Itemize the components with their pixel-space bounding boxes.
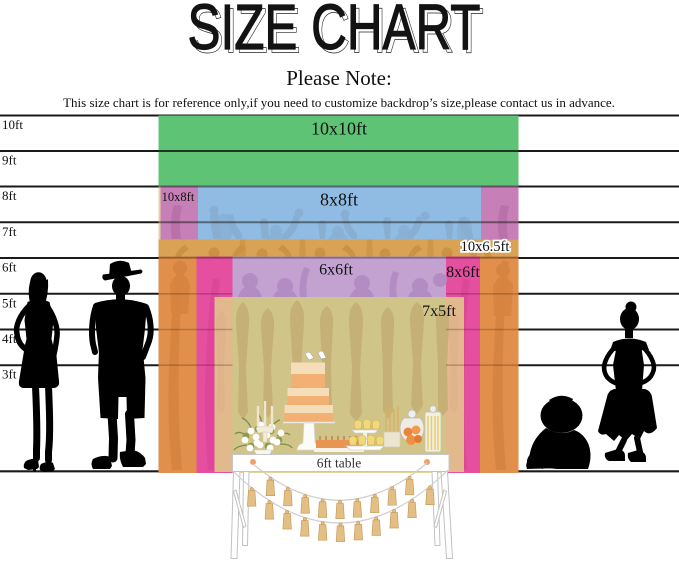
svg-text:5ft: 5ft	[2, 295, 17, 310]
svg-text:8x8ft: 8x8ft	[320, 190, 358, 210]
svg-text:6x6ft: 6x6ft	[319, 262, 353, 279]
svg-text:8ft: 8ft	[2, 188, 17, 203]
svg-text:10x10ft: 10x10ft	[311, 119, 367, 139]
svg-text:7x5ft: 7x5ft	[422, 303, 456, 320]
svg-text:10x6.5ft: 10x6.5ft	[461, 239, 510, 255]
svg-text:10x8ft: 10x8ft	[162, 190, 195, 204]
svg-text:6ft table: 6ft table	[317, 456, 362, 471]
svg-text:SIZE CHART: SIZE CHART	[188, 0, 481, 63]
svg-text:9ft: 9ft	[2, 153, 17, 168]
svg-text:10ft: 10ft	[2, 117, 23, 132]
svg-text:6ft: 6ft	[2, 260, 17, 275]
svg-text:7ft: 7ft	[2, 224, 17, 239]
svg-text:This size chart is for referen: This size chart is for reference only,if…	[63, 95, 615, 110]
svg-text:8x6ft: 8x6ft	[446, 264, 480, 281]
svg-text:Please Note:: Please Note:	[286, 66, 392, 90]
svg-text:3ft: 3ft	[2, 367, 17, 382]
